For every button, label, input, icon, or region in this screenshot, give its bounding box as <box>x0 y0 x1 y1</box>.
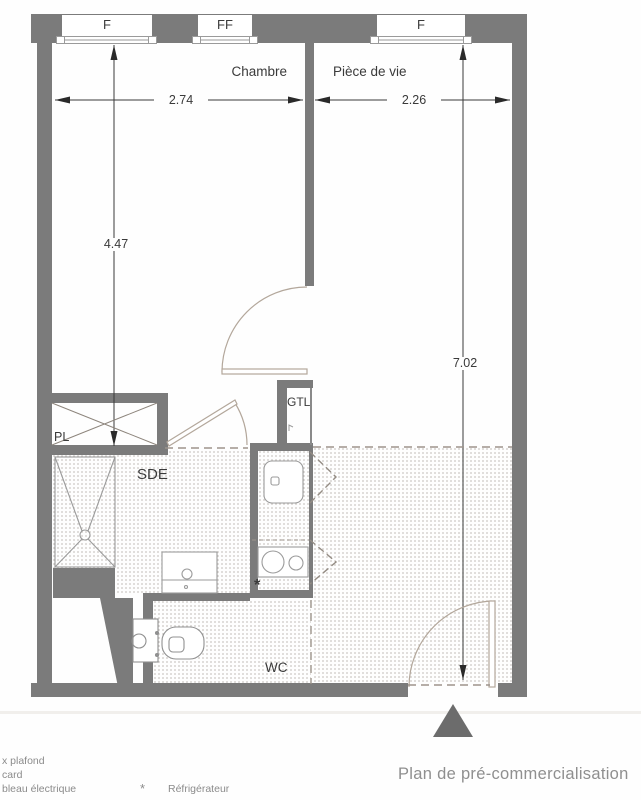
refrigerator-marker: * <box>254 578 260 594</box>
living-kitchen-zone-floor <box>313 447 512 683</box>
window-3-sill <box>370 36 472 44</box>
wall-kitchen-left <box>250 443 258 598</box>
wall-kitchen-right <box>309 443 313 598</box>
kitchen-tiled-floor <box>258 450 309 590</box>
legend-item-tableau-electrique: bleau électrique <box>2 784 76 795</box>
window-2-label: FF <box>198 18 252 31</box>
room-label-sde: SDE <box>137 467 168 482</box>
wall-chambre-divider <box>305 43 314 286</box>
wall-closet-top <box>48 393 168 403</box>
dimension-piece-width: 2.26 <box>387 94 441 107</box>
legend-item-placard: card <box>2 770 22 781</box>
room-label-gtl: GTL <box>287 396 310 408</box>
wall-closet-bottom <box>48 445 168 455</box>
floor-plan-page: F FF F Chambre Pièce de vie SDE GTL PL W… <box>0 0 641 800</box>
legend-item-faux-plafond: x plafond <box>2 756 45 767</box>
room-label-wc: WC <box>265 661 288 675</box>
dimension-piece-height: 7.02 <box>439 357 491 370</box>
wall-below-shower <box>53 568 115 598</box>
wall-bottom-right <box>498 683 527 697</box>
entrance-triangle <box>433 704 473 737</box>
wall-gtl-left <box>277 380 287 450</box>
plan-title: Plan de pré-commercialisation <box>398 766 629 783</box>
window-2-sill <box>192 36 258 44</box>
window-1-label: F <box>62 18 152 31</box>
wall-gtl-top <box>277 380 313 388</box>
electrical-panel-mark <box>289 425 293 431</box>
chambre-door <box>222 287 307 374</box>
wall-right <box>512 14 527 683</box>
wall-kitchen-top <box>250 443 313 451</box>
sde-door <box>167 400 247 446</box>
room-label-piece-de-vie: Pièce de vie <box>333 65 407 79</box>
room-label-chambre: Chambre <box>200 65 287 79</box>
legend-refrigerator-label: Réfrigérateur <box>168 784 229 795</box>
dimension-chambre-height: 4.47 <box>90 238 142 251</box>
wall-bottom-left <box>31 683 408 697</box>
wall-wc-top <box>143 593 250 601</box>
wall-left <box>37 14 52 697</box>
legend-refrigerator-symbol: * <box>140 782 145 795</box>
wall-wc-left-upper <box>143 593 153 620</box>
scan-artifact-line <box>0 711 641 714</box>
window-3-label: F <box>377 18 465 31</box>
window-1-sill <box>56 36 157 44</box>
room-label-pl: PL <box>54 431 69 444</box>
wall-angled-shaft <box>100 598 133 687</box>
wall-wc-left-lower <box>143 661 153 687</box>
dimension-chambre-width: 2.74 <box>154 94 208 107</box>
